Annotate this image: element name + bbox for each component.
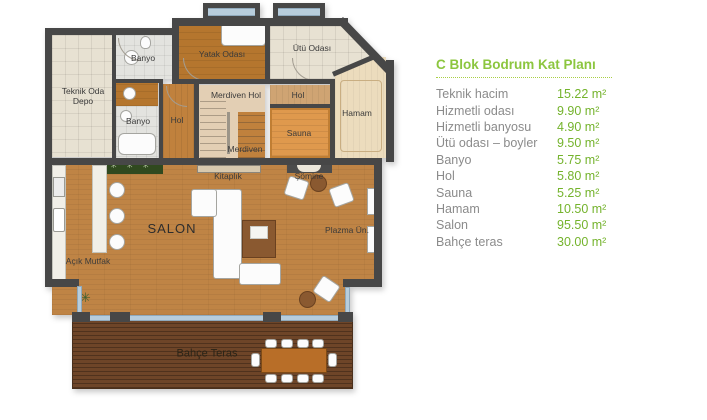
label-banyo-bottom: Banyo — [126, 116, 150, 126]
bar-stool — [109, 234, 125, 250]
chair — [312, 374, 324, 383]
wall — [45, 279, 79, 287]
label-hol-center: Hol — [292, 90, 305, 100]
floorplan-page: { "legend": { "title": "C Blok Bodrum Ka… — [0, 0, 707, 420]
chair — [251, 353, 260, 367]
chair — [297, 374, 309, 383]
label-plazma: Plazma Ün. — [325, 225, 369, 235]
wall-post — [263, 312, 281, 322]
chair — [297, 339, 309, 348]
table-tray — [250, 226, 268, 239]
room-name: Hol — [436, 169, 557, 183]
sofa-l-horizontal — [191, 189, 217, 217]
label-merdiven: Merdiven — [228, 144, 263, 154]
legend-row: Bahçe teras 30.00 m² — [436, 234, 674, 250]
bathtub — [118, 133, 156, 155]
wall — [194, 79, 199, 158]
bar-stool — [109, 208, 125, 224]
label-hol-left: Hol — [171, 115, 184, 125]
chair — [312, 339, 324, 348]
legend-title: C Blok Bodrum Kat Planı — [436, 57, 674, 72]
legend-row: Salon 95.50 m² — [436, 217, 674, 233]
chair — [281, 339, 293, 348]
room-name: Hamam — [436, 202, 557, 216]
side-table — [299, 291, 316, 308]
room-name: Teknik hacim — [436, 87, 557, 101]
window — [278, 8, 320, 16]
kitchen-sink — [53, 208, 65, 232]
room-area: 9.50 m² — [557, 136, 599, 150]
stove — [53, 177, 65, 197]
wall — [112, 33, 116, 158]
label-acik-mutfak: Açık Mutfak — [66, 256, 110, 266]
wall — [343, 279, 382, 287]
window — [208, 8, 255, 16]
room-name: Salon — [436, 218, 557, 232]
kitchen-island — [92, 165, 107, 253]
label-somine: Şömine — [295, 171, 324, 181]
dining-table — [261, 348, 327, 373]
label-salon: SALON — [147, 221, 196, 237]
wall — [172, 79, 335, 84]
legend-row: Banyo 5.75 m² — [436, 152, 674, 168]
legend-row: Hol 5.80 m² — [436, 168, 674, 184]
room-name: Banyo — [436, 153, 557, 167]
stairs-flight-left — [200, 98, 226, 158]
room-area: 5.80 m² — [557, 169, 599, 183]
room-name: Bahçe teras — [436, 235, 557, 249]
wall — [270, 104, 330, 108]
sofa-l-vertical — [213, 189, 242, 279]
wall — [172, 26, 179, 84]
room-area: 30.00 m² — [557, 235, 606, 249]
wall — [45, 28, 177, 35]
room-area: 4.90 m² — [557, 120, 599, 134]
room-area: 95.50 m² — [557, 218, 606, 232]
chair — [265, 339, 277, 348]
wall — [265, 18, 270, 84]
room-area: 9.90 m² — [557, 104, 599, 118]
label-kitaplik: Kitaplık — [214, 171, 242, 181]
label-utu-odasi: Ütü Odası — [293, 43, 331, 53]
wall — [159, 79, 163, 158]
room-name: Sauna — [436, 186, 557, 200]
legend-divider — [436, 77, 612, 78]
label-sauna: Sauna — [287, 128, 312, 138]
room-area: 5.75 m² — [557, 153, 599, 167]
legend-panel: C Blok Bodrum Kat Planı Teknik hacim 15.… — [434, 57, 674, 250]
chair — [281, 374, 293, 383]
wall-post — [110, 312, 130, 322]
room-area: 15.22 m² — [557, 87, 606, 101]
wall-post — [338, 312, 353, 322]
legend-row: Ütü odası – boyler 9.50 m² — [436, 135, 674, 151]
room-area: 10.50 m² — [557, 202, 606, 216]
sofa-small — [239, 263, 281, 285]
legend-row: Sauna 5.25 m² — [436, 184, 674, 200]
wall-post — [72, 312, 90, 322]
bar-stool — [109, 182, 125, 198]
wall — [45, 158, 382, 165]
label-merdiven-hol: Merdiven Hol — [211, 90, 261, 100]
label-teknik-oda: Teknik Oda Depo — [62, 86, 105, 106]
label-bahce-teras: Bahçe Teras — [177, 347, 238, 360]
vanity-sink — [123, 87, 136, 100]
floor-plan: ✳ ✳ ✳ ✳ — [0, 0, 430, 420]
chair — [328, 353, 337, 367]
room-name: Ütü odası – boyler — [436, 136, 557, 150]
legend-row: Hamam 10.50 m² — [436, 201, 674, 217]
label-banyo-top: Banyo — [131, 53, 155, 63]
wall — [112, 79, 162, 83]
room-area: 5.25 m² — [557, 186, 599, 200]
wall — [45, 28, 52, 286]
label-yatak-odasi: Yatak Odası — [199, 49, 245, 59]
wall — [374, 158, 382, 287]
legend-row: Hizmetli banyosu 4.90 m² — [436, 119, 674, 135]
chair — [265, 374, 277, 383]
wall — [330, 79, 335, 158]
corner-bathtub — [221, 23, 266, 46]
legend-row: Teknik hacim 15.22 m² — [436, 86, 674, 102]
label-hamam: Hamam — [342, 108, 372, 118]
toilet — [140, 36, 151, 49]
room-name: Hizmetli banyosu — [436, 120, 557, 134]
room-name: Hizmetli odası — [436, 104, 557, 118]
wall — [386, 60, 394, 162]
legend-row: Hizmetli odası 9.90 m² — [436, 102, 674, 118]
